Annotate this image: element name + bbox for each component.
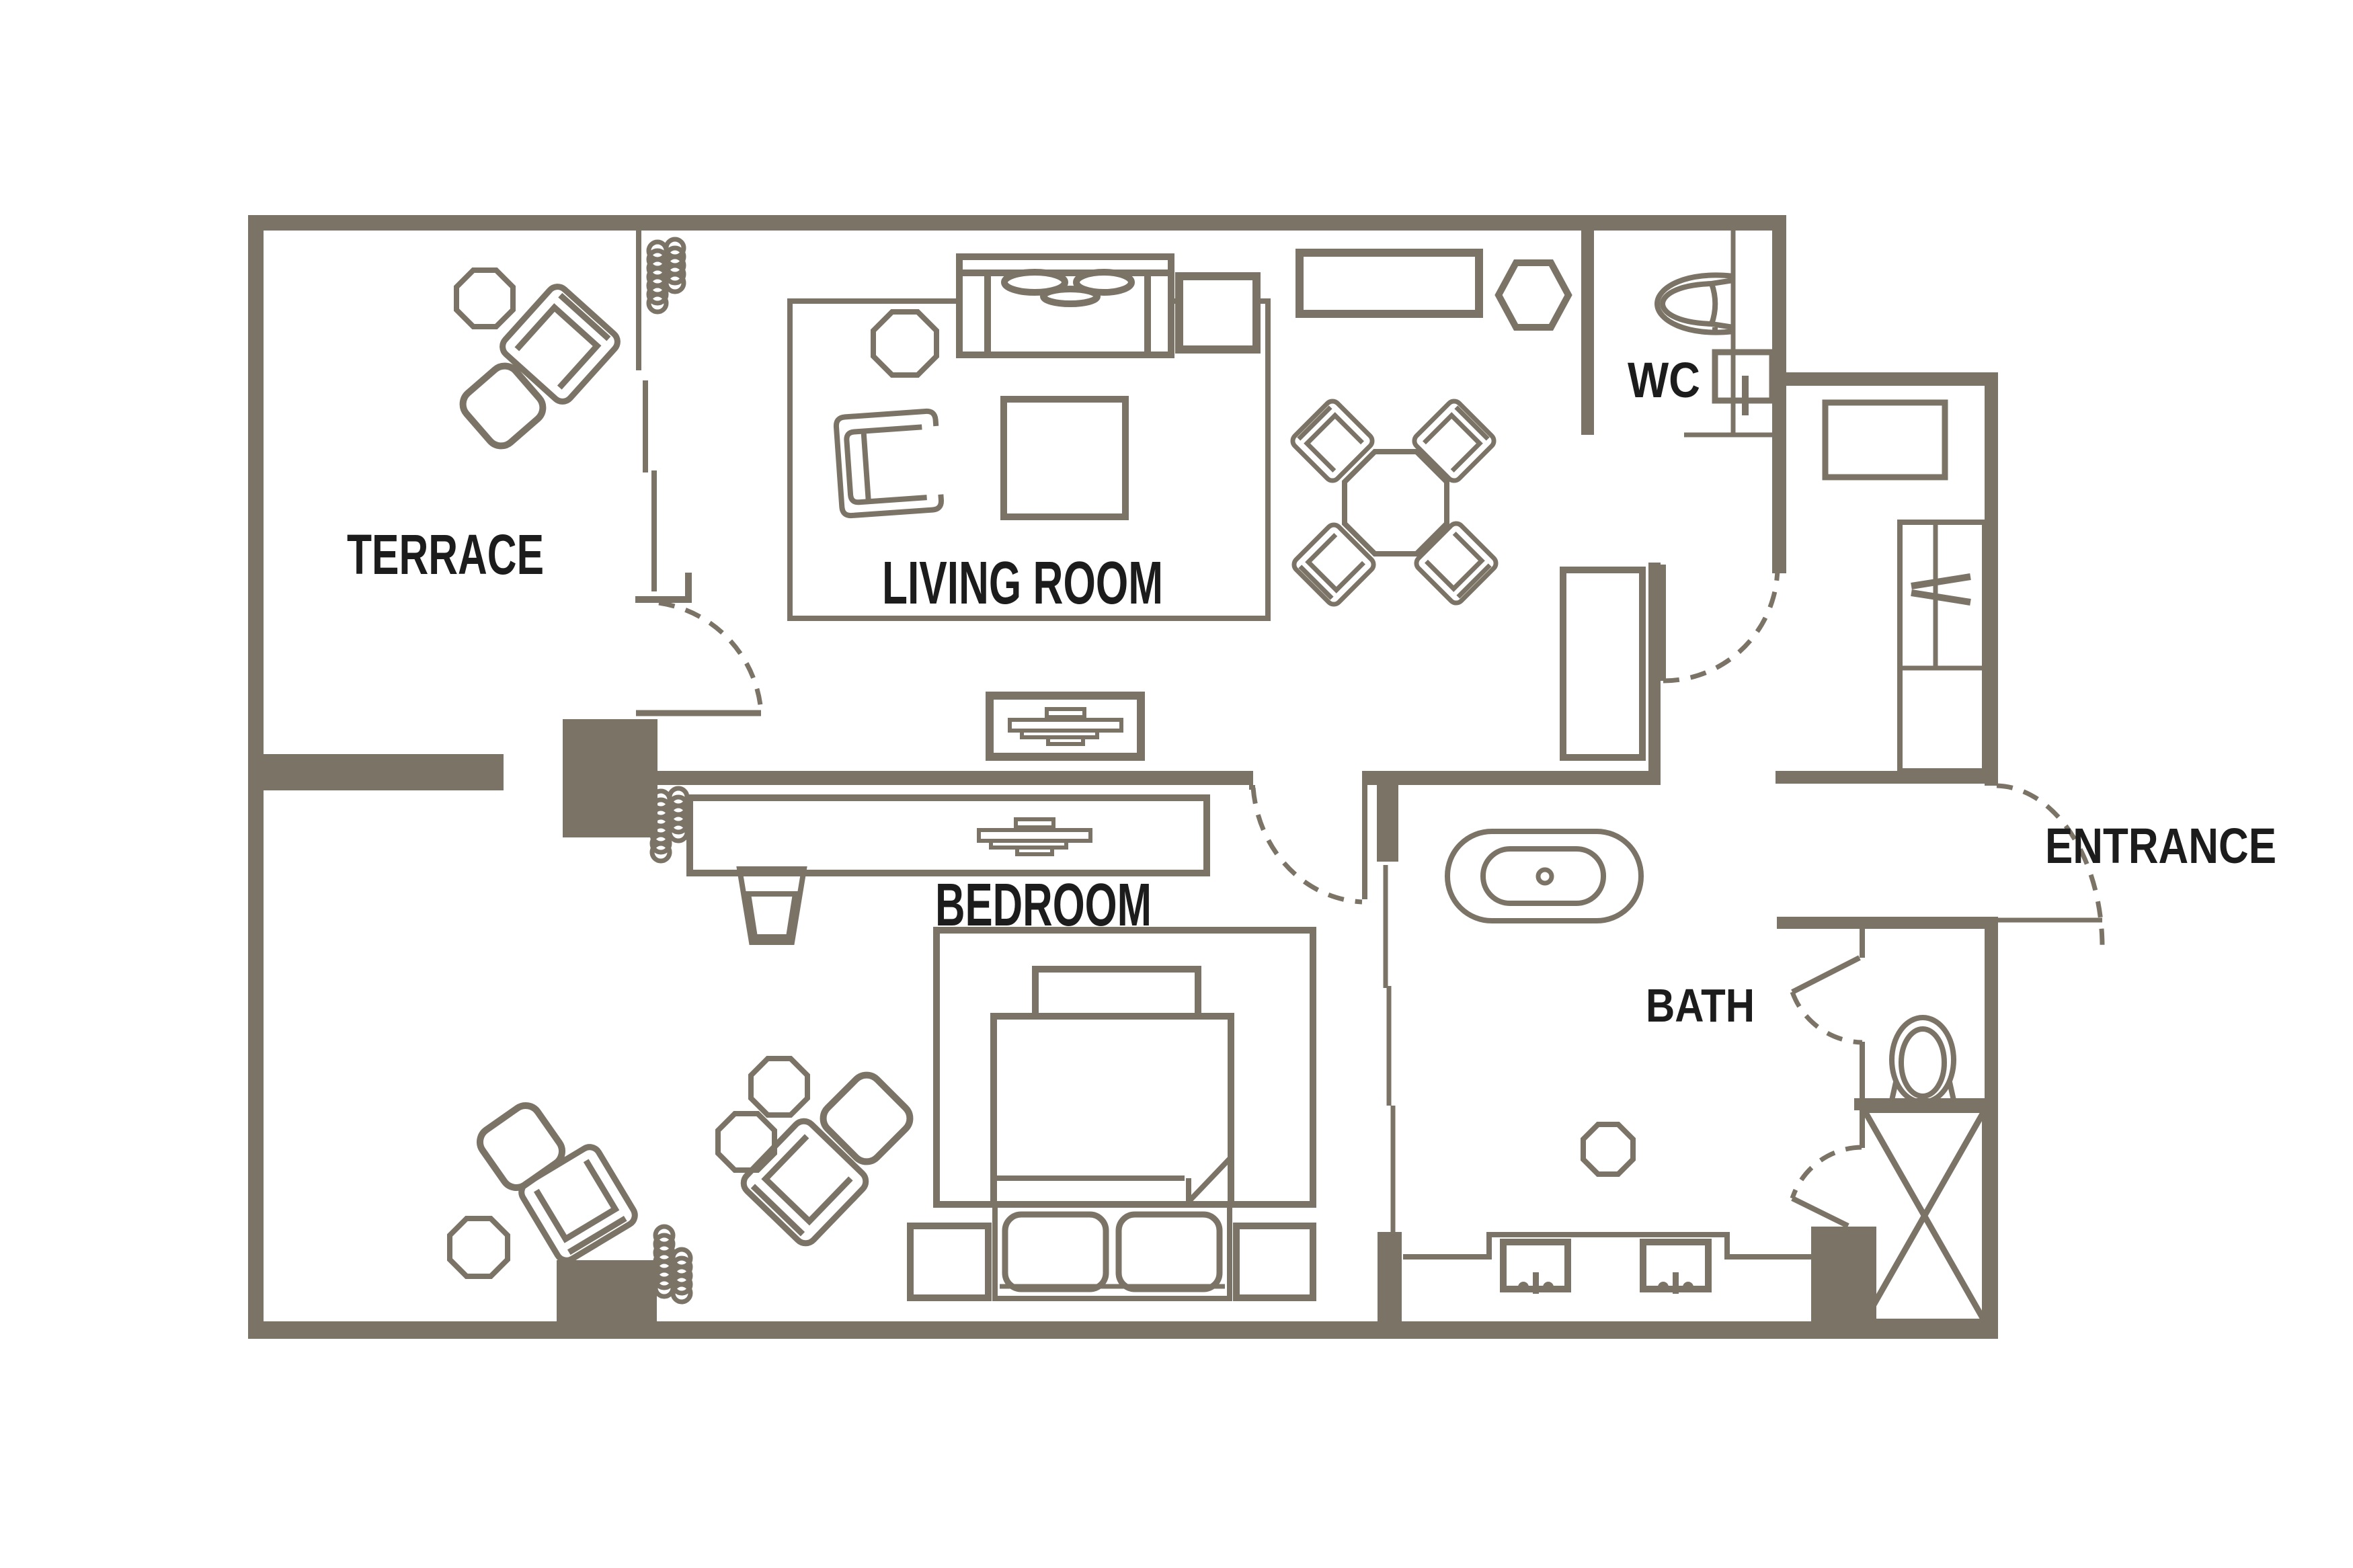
svg-text:ENTRANCE: ENTRANCE bbox=[2045, 818, 2276, 874]
svg-text:WC: WC bbox=[1628, 352, 1700, 408]
svg-text:BATH: BATH bbox=[1646, 979, 1755, 1032]
svg-text:LIVING ROOM: LIVING ROOM bbox=[882, 550, 1163, 617]
svg-text:BEDROOM: BEDROOM bbox=[935, 872, 1152, 939]
svg-text:TERRACE: TERRACE bbox=[347, 523, 544, 586]
